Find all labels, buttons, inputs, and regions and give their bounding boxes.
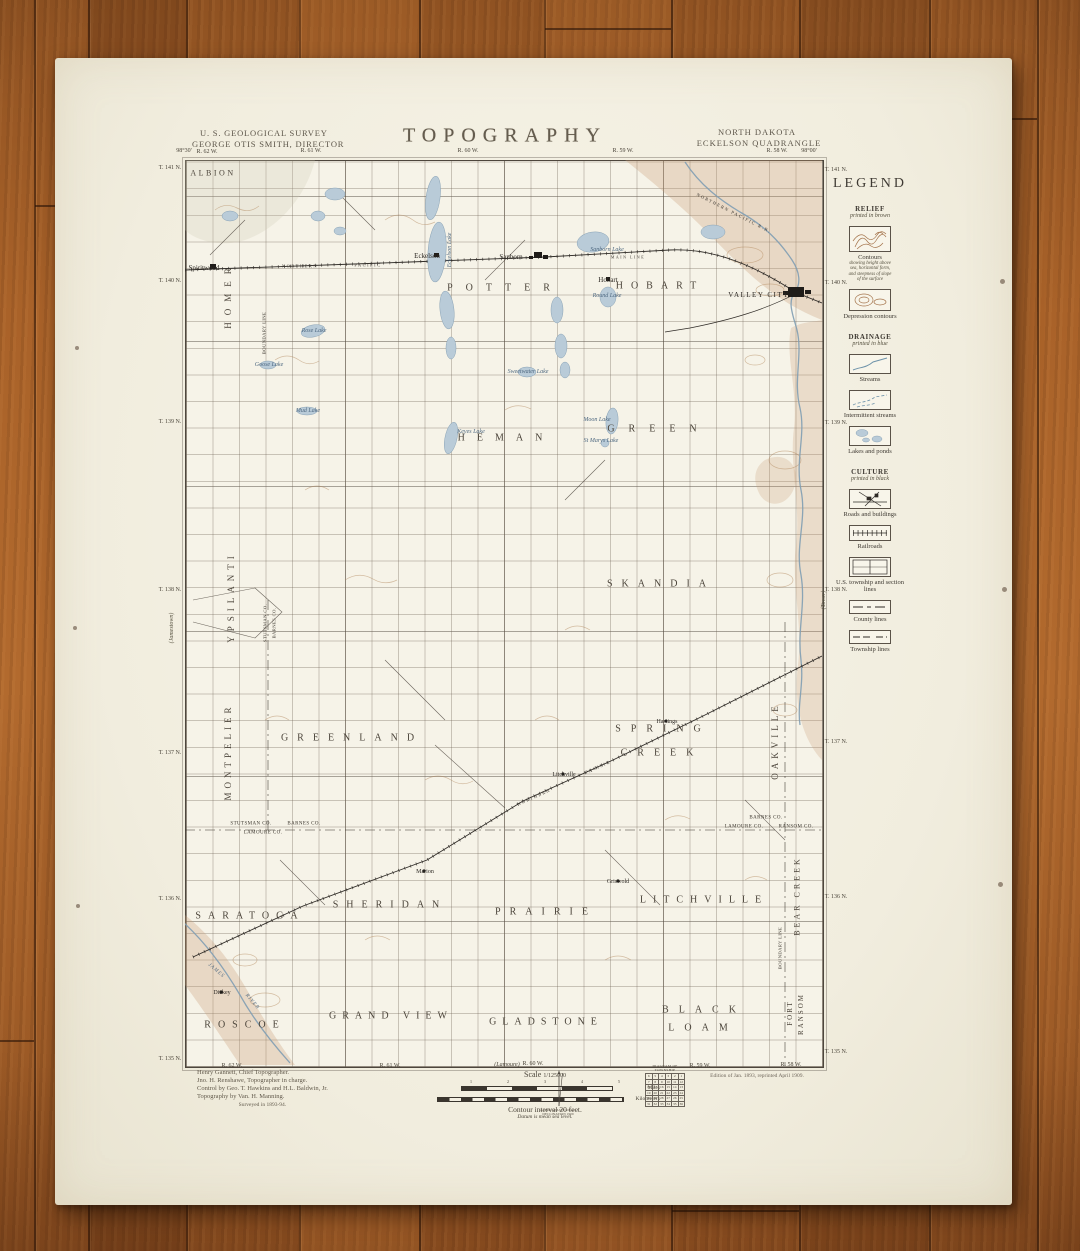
map-label-rose-lake: Rose Lake	[302, 328, 327, 334]
map-label-spring: SPRING	[615, 724, 711, 735]
map-label-stutsman-co: STUTSMAN CO.	[263, 604, 268, 642]
map-label-skandia: SKANDIA	[607, 579, 715, 590]
declination-caption: APPROXIMATE MEANDECLINATION 1909	[540, 1108, 576, 1116]
map-label-greenland: GREENLAND	[281, 733, 423, 744]
map-label-t-137-n: T. 137 N.	[159, 750, 182, 756]
legend-section-relief: RELIEF	[830, 205, 910, 213]
floor-plank-seam	[1037, 0, 1039, 1251]
quadrangle-name: ECKELSON QUADRANGLE	[697, 138, 822, 148]
map-label-litchville: Litchville	[552, 772, 575, 778]
map-label-r-61-w: R. 61 W.	[300, 148, 321, 154]
map-label-homer: HOMER	[223, 261, 233, 329]
paper-hole	[75, 346, 79, 350]
scale-tick: 4	[581, 1079, 583, 1084]
legend-swatch-roads-and-buildings	[849, 489, 891, 509]
map-label-bear-creek: BEAR CREEK	[793, 856, 802, 936]
state-name: NORTH DAKOTA	[718, 127, 796, 137]
credit-line: Jno. H. Renshawe, Topographer in charge.	[197, 1077, 328, 1085]
floor-plank-joint	[545, 28, 671, 30]
map-label-barnes-co: BARNES CO.	[287, 822, 320, 827]
map-label-ransom: RANSOM	[797, 993, 805, 1035]
map-label-t-141-n: T. 141 N.	[159, 165, 182, 171]
map-label-loam: LOAM	[668, 1023, 737, 1034]
credit-line: Surveyed in 1893-94.	[197, 1101, 328, 1109]
paper-hole	[73, 626, 77, 630]
legend-section-subtitle: printed in blue	[830, 341, 910, 347]
legend-swatch-county-lines	[849, 600, 891, 614]
legend-swatch-depression-contours	[849, 289, 891, 311]
scale-tick: 5	[618, 1079, 620, 1084]
scale-text: Scale 1/125000	[430, 1070, 660, 1079]
legend-label-depression-contours: Depression contours	[830, 313, 910, 320]
map-label-main-line: MAIN LINE	[611, 255, 645, 260]
legend-swatch-intermittent-streams	[849, 390, 891, 410]
section-number: 36	[678, 1101, 685, 1107]
map-label-green: GREEN	[607, 424, 710, 435]
paper-hole	[998, 882, 1003, 887]
map-label-r-58-w: R. 58 W.	[766, 148, 787, 154]
map-label-t-138-n: T. 138 N.	[159, 587, 182, 593]
map-label-st-marys-lake: St Marys Lake	[584, 438, 619, 444]
map-label-hobart: HOBART	[616, 281, 705, 292]
township-diagram: DIAGRAM OF TOWNSHIP 65432178910111218171…	[645, 1064, 685, 1108]
legend-label-intermittent-streams: Intermittent streams	[830, 412, 910, 419]
map-label-moon-lake: Moon Lake	[583, 417, 610, 423]
map-label-r-62-w: R. 62 W.	[196, 149, 217, 155]
survey-name: U. S. GEOLOGICAL SURVEY	[200, 128, 328, 138]
map-label-ransom-co: RANSOM CO.	[779, 825, 814, 830]
legend-sublabel: showing height abovesea, horizontal form…	[830, 261, 910, 282]
floor-plank-joint	[0, 1040, 34, 1042]
map-label-potter: POTTER	[447, 283, 563, 294]
map-label-r-58-w: R. 58 W.	[780, 1062, 801, 1068]
photo-of-antique-map: U. S. GEOLOGICAL SURVEY GEORGE OTIS SMIT…	[0, 0, 1080, 1251]
declination-diagram	[552, 1070, 566, 1108]
map-label-lamoure-co: LAMOURE CO.	[725, 825, 764, 830]
map-label-boundary-line: BOUNDARY LINE	[778, 927, 783, 969]
legend-swatch-streams	[849, 354, 891, 374]
credits-block: Henry Gannett, Chief Topographer.Jno. H.…	[197, 1069, 328, 1109]
credit-line: Topography by Van. H. Manning.	[197, 1093, 328, 1101]
map-label-marion: Marion	[416, 869, 434, 875]
map-label-northern: NORTHERN	[282, 264, 318, 269]
legend-swatch-lakes-and-ponds	[849, 426, 891, 446]
map-label-t-141-n: T. 141 N.	[825, 167, 848, 173]
map-label-pacific: PACIFIC	[354, 263, 381, 268]
map-label-r-60-w: R. 60 W.	[522, 1061, 543, 1067]
legend-label-railroads: Railroads	[830, 543, 910, 550]
map-label-98-30: 98°30'	[176, 148, 191, 154]
map-label-griswold: Griswold	[607, 879, 629, 885]
map-label-gladstone: GLADSTONE	[489, 1017, 603, 1028]
scale-tick: 1	[470, 1079, 472, 1084]
credit-line: Control by Geo. T. Hawkins and H.L. Bald…	[197, 1085, 328, 1093]
map-label-creek: CREEK	[621, 748, 704, 759]
legend-label-roads-and-buildings: Roads and buildings	[830, 511, 910, 518]
map-artwork	[185, 160, 822, 1066]
map-label-sanborn-lake: Sanborn Lake	[590, 247, 624, 253]
legend-label-lakes-and-ponds: Lakes and ponds	[830, 448, 910, 455]
legend: LEGEND RELIEFprinted in brownContourssho…	[830, 176, 910, 653]
map-label-t-140-n: T. 140 N.	[159, 278, 182, 284]
map-label-saratoga: SARATOGA	[195, 911, 304, 922]
map-label-boundary-line: BOUNDARY LINE	[262, 312, 267, 354]
miles-scale-bar	[461, 1086, 613, 1091]
legend-swatch-contours	[849, 226, 891, 252]
map-label-eckelson: Eckelson	[414, 252, 440, 260]
legend-label-contours: Contours	[830, 254, 910, 261]
map-label-litchville: LITCHVILLE	[640, 895, 768, 906]
map-label-barnes-co: BARNES CO.	[749, 816, 782, 821]
floor-plank-seam	[34, 0, 36, 1251]
legend-label-streams: Streams	[830, 376, 910, 383]
map-label-keyes-lake: Keyes Lake	[457, 429, 485, 435]
map-label-t-135-n: T. 135 N.	[159, 1056, 182, 1062]
map-label-eckelson-lake: Eckelson Lake	[447, 233, 453, 268]
legend-section-culture: CULTURE	[830, 468, 910, 476]
map-label-oakville: OAKVILLE	[770, 702, 780, 780]
map-label-sanborn: Sanborn	[499, 253, 522, 261]
floor-plank-joint	[672, 1210, 799, 1212]
map-label-valley-city: VALLEY CITY	[728, 291, 789, 299]
legend-label-county-lines: County lines	[830, 616, 910, 623]
legend-section-drainage: DRAINAGE	[830, 333, 910, 341]
map-label-jamestown: (Jamestown)	[169, 613, 175, 644]
map-label-r-60-w: R. 60 W.	[457, 148, 478, 154]
map-label-black: BLACK	[662, 1005, 746, 1016]
declination-caption-line: DECLINATION 1909	[540, 1112, 576, 1116]
scale-tick: 2	[507, 1079, 509, 1084]
map-label-dickey: Dickey	[213, 990, 230, 996]
map-label-albion: ALBION	[190, 169, 235, 178]
map-label-hastings: Hastings	[657, 719, 678, 725]
map-label-t-135-n: T. 135 N.	[825, 1049, 848, 1055]
edition-note: Edition of Jan. 1893, reprinted April 19…	[710, 1073, 804, 1079]
map-label-r-59-w: R. 59 W.	[612, 148, 633, 154]
map-label-t-137-n: T. 137 N.	[825, 739, 848, 745]
map-label-t-136-n: T. 136 N.	[825, 894, 848, 900]
map-label-tower: (Tower)	[821, 591, 827, 610]
map-label-lamoure: (Lamoure)	[494, 1062, 519, 1068]
legend-title: LEGEND	[830, 176, 910, 192]
map-label-ypsilanti: YPSILANTI	[226, 551, 236, 643]
map-label-sheridan: SHERIDAN	[333, 900, 448, 911]
map-label-prairie: PRAIRIE	[495, 907, 597, 918]
map-label-fort: FORT	[786, 1000, 794, 1025]
legend-section-subtitle: printed in black	[830, 476, 910, 482]
paper-hole	[76, 904, 80, 908]
map-label-round-lake: Round Lake	[593, 293, 622, 299]
township-diagram-title: DIAGRAM OF TOWNSHIP	[645, 1064, 685, 1072]
map-label-stutsman-co: STUTSMAN CO.	[230, 822, 271, 827]
kilometers-scale-bar	[437, 1097, 624, 1102]
map-label-mud-lake: Mud Lake	[296, 408, 320, 414]
map-label-sweetwater-lake: Sweetwater Lake	[508, 369, 549, 375]
map-title: TOPOGRAPHY	[403, 125, 607, 148]
map-label-roscoe: ROSCOE	[204, 1020, 285, 1031]
map-label-barnes-co: BARNES CO.	[272, 608, 277, 639]
map-label-t-139-n: T. 139 N.	[159, 419, 182, 425]
paper-hole	[1002, 587, 1007, 592]
credit-line: Henry Gannett, Chief Topographer.	[197, 1069, 328, 1077]
legend-swatch-u-s-township-and-section-lines	[849, 557, 891, 577]
legend-swatch-township-lines	[849, 630, 891, 644]
scale-tick: 3	[544, 1079, 546, 1084]
map-label-hobart: Hobart	[598, 276, 617, 284]
map-label-t-136-n: T. 136 N.	[159, 896, 182, 902]
map-label-goose-lake: Goose Lake	[255, 362, 284, 368]
legend-swatch-railroads	[849, 525, 891, 541]
map-label-r-59-w: R. 59 W.	[689, 1063, 710, 1069]
legend-section-subtitle: printed in brown	[830, 213, 910, 219]
map-label-grand-view: GRAND VIEW	[329, 1011, 453, 1022]
map-label-lamoure-co: LAMOURE CO.	[244, 831, 283, 836]
legend-label-u-s-township-and-section-lines: U.S. township and section lines	[830, 579, 910, 593]
map-label-montpelier: MONTPELIER	[223, 704, 233, 801]
paper-hole	[1000, 279, 1005, 284]
map-label-spiritwood: Spiritwood	[188, 264, 219, 272]
map-label-98-00: 98°00'	[801, 148, 816, 154]
map-label-r-61-w: R. 61 W.	[379, 1063, 400, 1069]
legend-label-township-lines: Township lines	[830, 646, 910, 653]
